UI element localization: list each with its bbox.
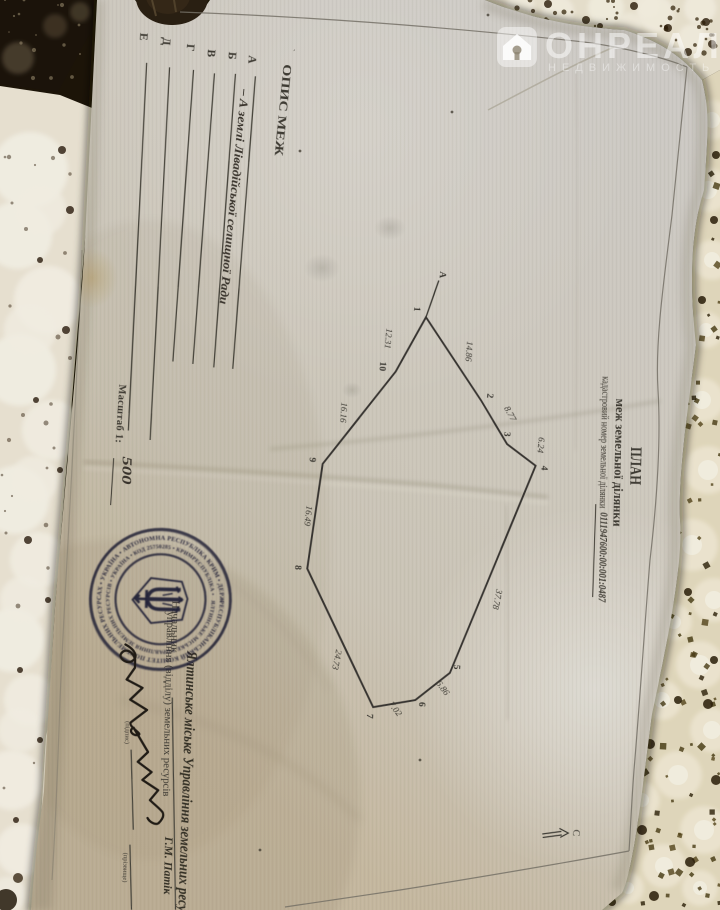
svg-text:ОНРЕАЛ: ОНРЕАЛ [545, 25, 720, 66]
svg-text:НЕДВИЖИМОСТЬ: НЕДВИЖИМОСТЬ [548, 62, 715, 74]
